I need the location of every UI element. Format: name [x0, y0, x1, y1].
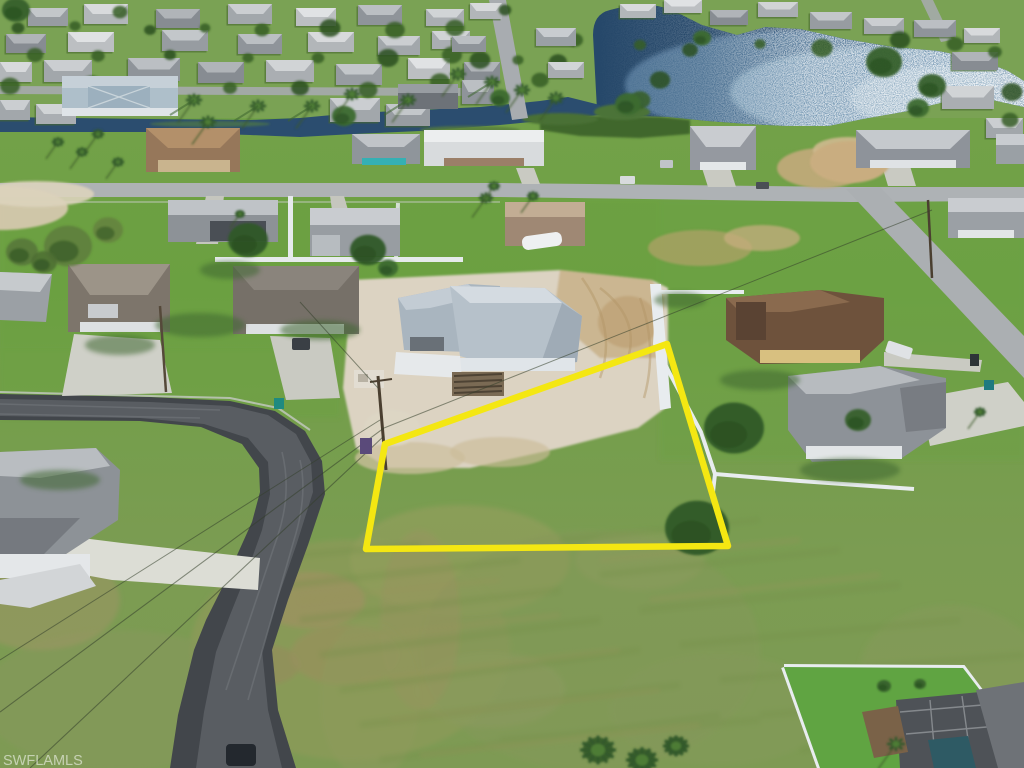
svg-text:SWFLAMLS: SWFLAMLS [3, 753, 83, 768]
